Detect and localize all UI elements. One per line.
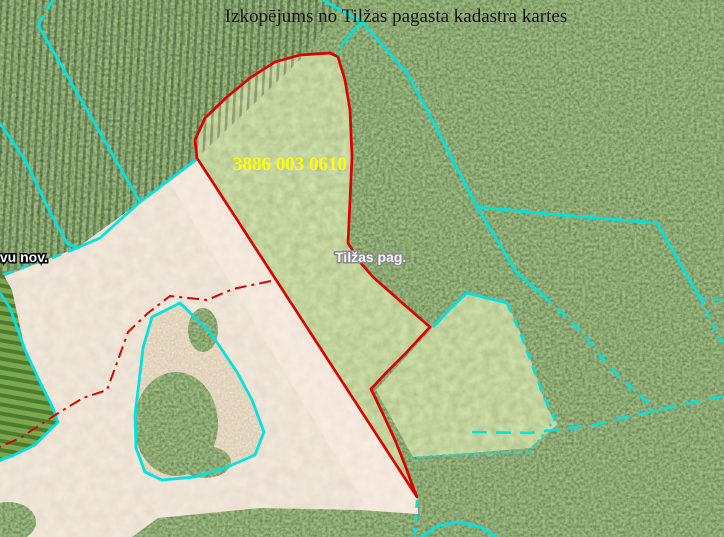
municipality-label: lvu nov. — [0, 249, 48, 265]
parish-label: Tilžas pag. — [335, 249, 406, 265]
map-title: Izkopējums no Tilžas pagasta kadastra ka… — [225, 6, 567, 27]
parcel-number-label: 3886 003 0610 — [233, 154, 347, 175]
cadastral-map-extract: Izkopējums no Tilžas pagasta kadastra ka… — [0, 0, 724, 537]
cadastral-map-canvas: Izkopējums no Tilžas pagasta kadastra ka… — [0, 0, 724, 537]
